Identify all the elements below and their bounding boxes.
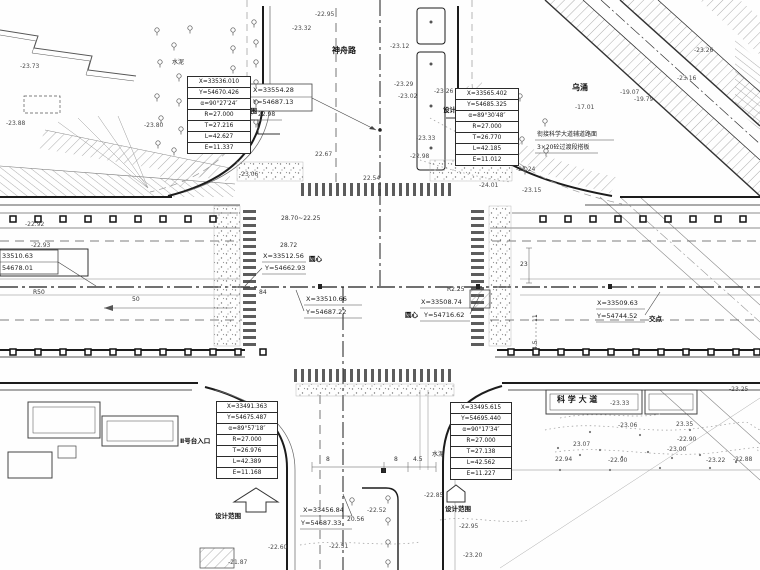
contour-lines [300, 118, 760, 545]
channel-wuchong [500, 0, 760, 568]
centerline-point-markers [318, 128, 612, 289]
tree-pit-squares [10, 216, 760, 355]
building-footprints-southwest [8, 402, 234, 568]
plan-linework [0, 0, 760, 570]
retaining-wall-northwest [0, 30, 148, 188]
road-intersection-plan-drawing: 神舟路乌涌科 学 大 道Ⅰ号台入口Ⅱ号台入口设计范围设计范围设计范围设计范围衔接… [0, 0, 760, 570]
kexue-avenue-band [546, 390, 697, 414]
crosswalk-stripes [243, 183, 484, 382]
